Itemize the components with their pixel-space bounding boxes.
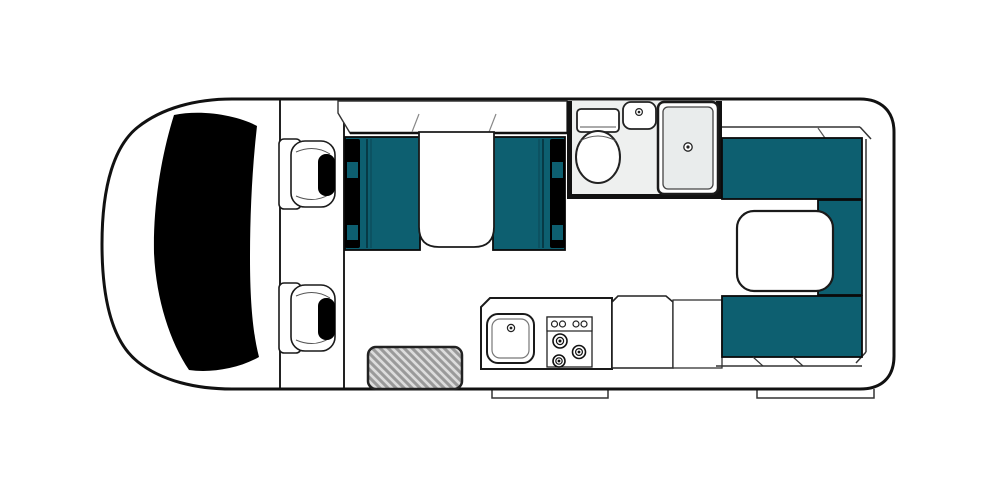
toilet [576, 109, 620, 183]
kitchen-sink [487, 314, 534, 363]
stove-knob-3 [573, 321, 579, 327]
shower-drain-dot [686, 145, 689, 148]
bench-right-belt-notch-1 [552, 162, 563, 178]
campervan-floorplan [0, 0, 1000, 500]
kitchen-sink-drain-dot [510, 327, 513, 330]
lounge-cushion-top [722, 138, 862, 199]
hand-basin [623, 102, 656, 129]
entry-door-mat [368, 347, 462, 389]
bathroom [567, 101, 722, 199]
passenger-headrest [318, 298, 335, 340]
basin-drain-dot [638, 111, 641, 114]
dinette-bench-left [345, 137, 420, 250]
stove-knob-1 [552, 321, 558, 327]
kitchen-cabinet [612, 296, 673, 368]
driver-headrest [318, 154, 335, 196]
driver-seat [279, 139, 335, 209]
bench-right-belt-notch-2 [552, 225, 563, 240]
bench-left-belt-notch-1 [347, 162, 358, 178]
shower [658, 102, 718, 194]
lounge-cushion-bottom [722, 296, 862, 357]
stove-burner-2 [573, 346, 586, 359]
passenger-seat [279, 283, 335, 353]
bench-left-belt-notch-2 [347, 225, 358, 240]
lounge-table [737, 211, 833, 291]
overcab-bunk-panel [338, 101, 567, 133]
toilet-cistern [577, 109, 619, 132]
toilet-bowl [576, 131, 620, 183]
stove-knob-2 [560, 321, 566, 327]
dinette-table [419, 132, 494, 247]
kitchen [481, 296, 722, 369]
bathroom-wall-left [567, 101, 572, 198]
kitchen-cabinet-2 [673, 300, 722, 368]
rear-lounge [716, 127, 871, 366]
stove [547, 317, 592, 367]
bunk-panel [338, 101, 567, 133]
dinette-bench-right [493, 137, 565, 250]
stove-knob-4 [581, 321, 587, 327]
stove-burner-3 [553, 355, 565, 367]
stove-burner-1 [553, 334, 567, 348]
